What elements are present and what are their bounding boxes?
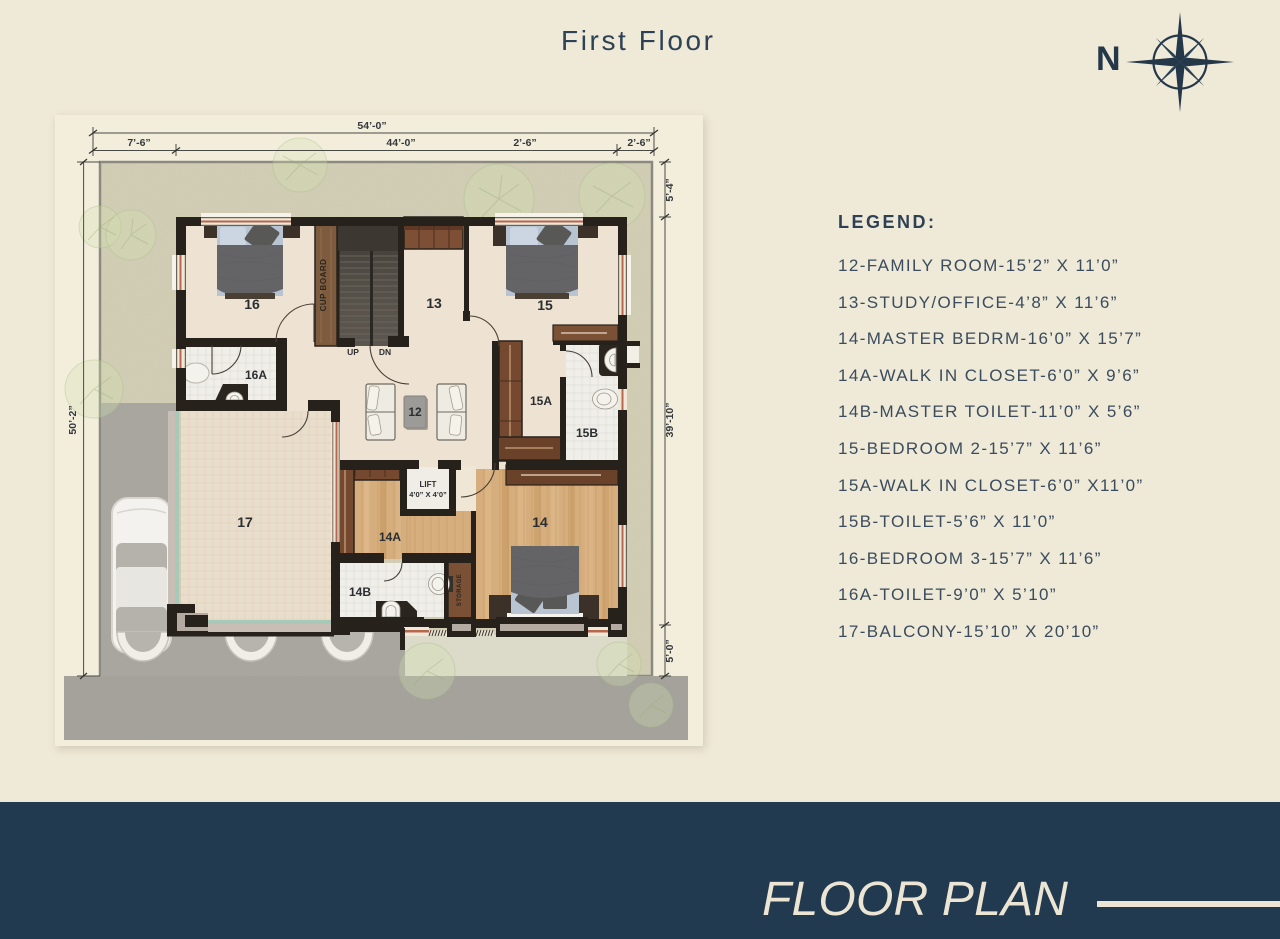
svg-text:14B: 14B bbox=[349, 585, 371, 599]
svg-text:STORAGE: STORAGE bbox=[457, 574, 463, 606]
svg-text:50’-2”: 50’-2” bbox=[67, 405, 79, 434]
svg-text:2’-6”: 2’-6” bbox=[627, 137, 650, 149]
svg-text:44’-0”: 44’-0” bbox=[386, 137, 415, 149]
svg-text:CUP BOARD: CUP BOARD bbox=[319, 259, 328, 312]
svg-text:5’-0”: 5’-0” bbox=[664, 639, 676, 662]
svg-text:16: 16 bbox=[244, 296, 260, 312]
svg-text:16A: 16A bbox=[245, 368, 267, 382]
svg-text:15B: 15B bbox=[576, 426, 598, 440]
svg-text:2’-6”: 2’-6” bbox=[513, 137, 536, 149]
svg-text:54’-0”: 54’-0” bbox=[357, 120, 386, 132]
svg-text:LIFT: LIFT bbox=[420, 480, 437, 489]
svg-text:13: 13 bbox=[426, 295, 442, 311]
svg-text:4’0” X 4’0”: 4’0” X 4’0” bbox=[409, 490, 447, 499]
svg-text:7’-6”: 7’-6” bbox=[127, 137, 150, 149]
svg-text:DN: DN bbox=[379, 347, 391, 357]
svg-text:5’-4”: 5’-4” bbox=[664, 178, 676, 201]
svg-text:14A: 14A bbox=[379, 530, 401, 544]
svg-text:15A: 15A bbox=[530, 394, 552, 408]
svg-text:UP: UP bbox=[347, 347, 359, 357]
svg-text:14: 14 bbox=[532, 514, 548, 530]
svg-text:15: 15 bbox=[537, 297, 553, 313]
svg-text:17: 17 bbox=[237, 514, 253, 530]
svg-text:12: 12 bbox=[408, 405, 422, 419]
svg-text:39’-10”: 39’-10” bbox=[664, 402, 676, 437]
